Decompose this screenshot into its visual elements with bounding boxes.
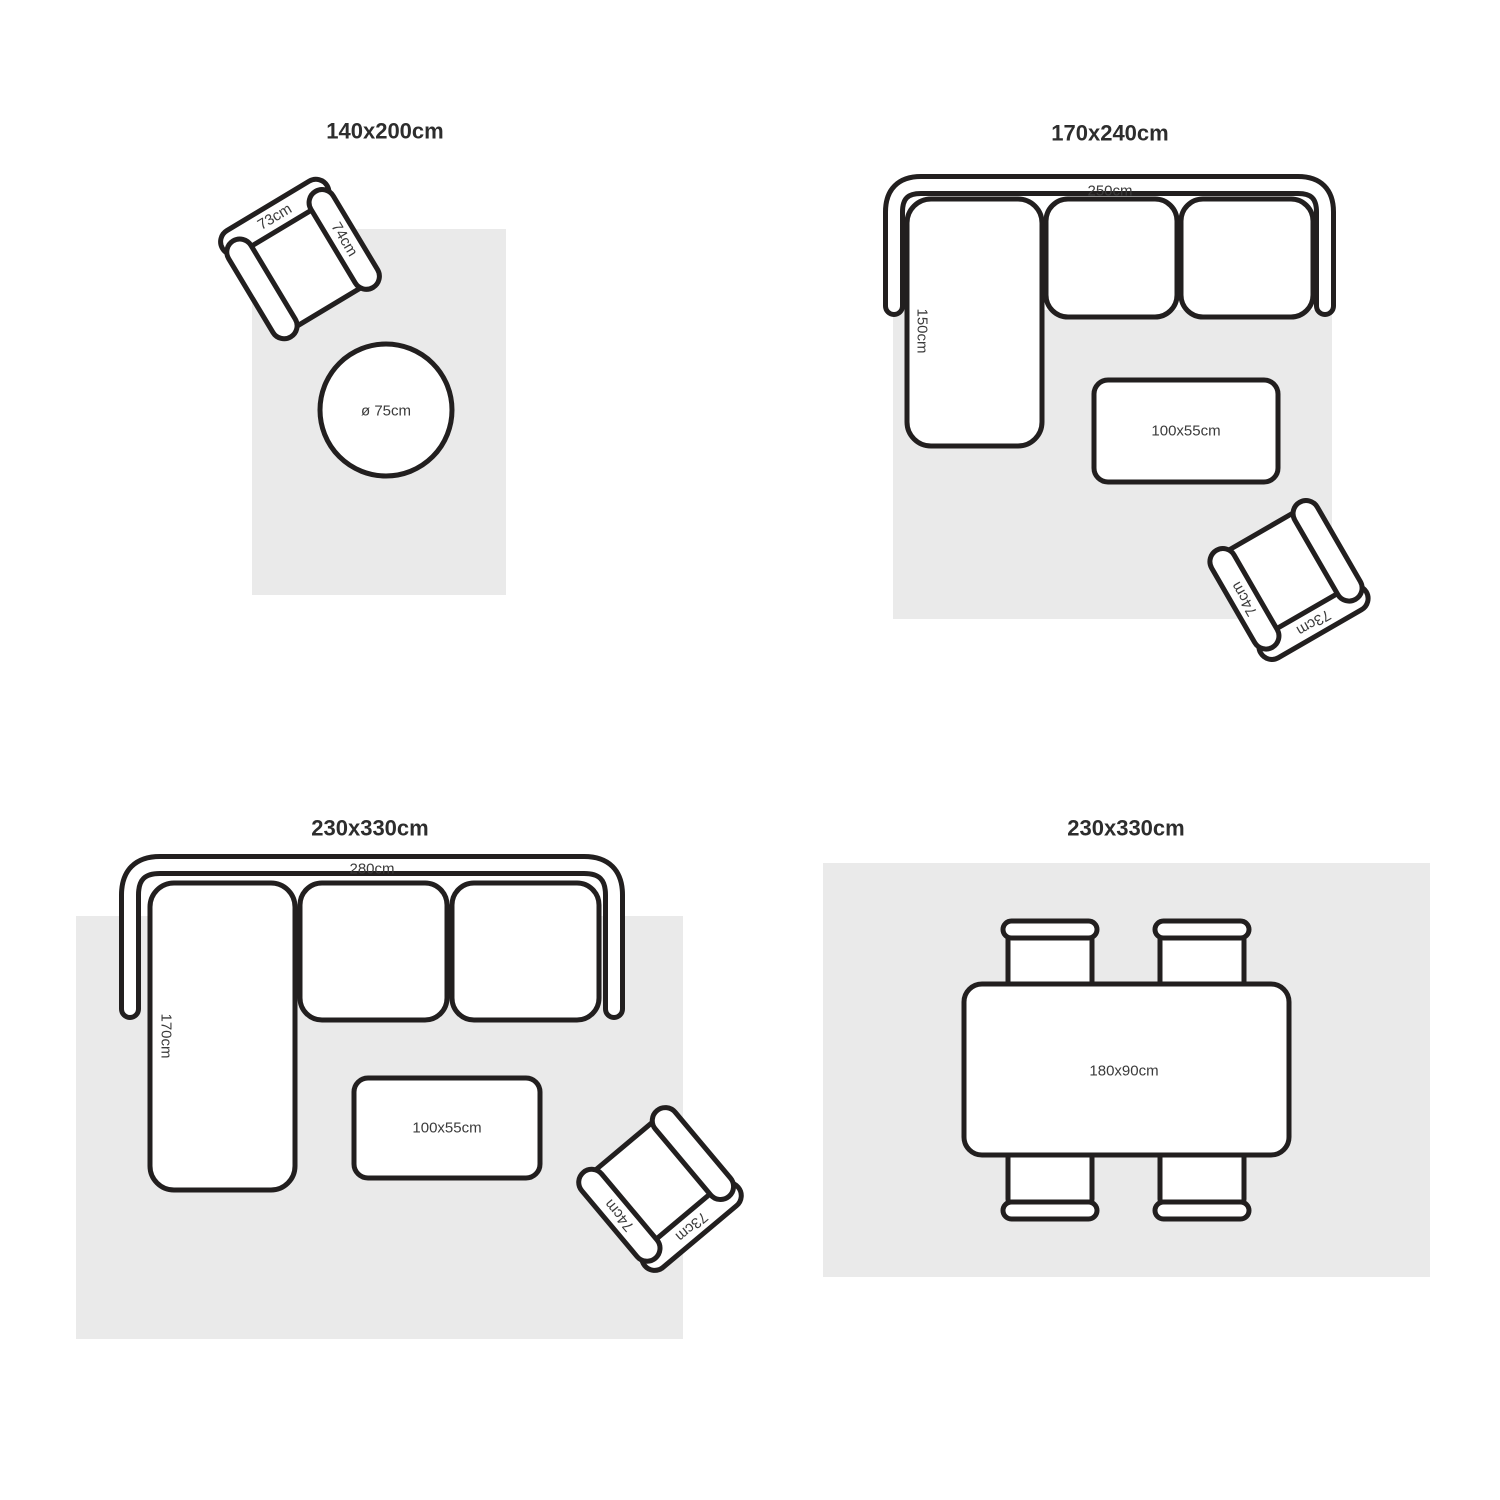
dining-chair-backrest (1003, 921, 1097, 938)
sofa-chaise-depth-label: 170cm (158, 1013, 175, 1058)
dining-chair-backrest (1155, 921, 1249, 938)
panel-title: 230x330cm (1067, 816, 1184, 841)
panel-230x330-living: 230x330cm 280cm 170cm 100x55cm 73cm 74cm (76, 816, 747, 1340)
coffee-table-size-label: 100x55cm (1151, 423, 1220, 440)
dining-chair-backrest (1003, 1202, 1097, 1219)
panel-170x240: 170x240cm 250cm 150cm 100x55cm 73cm 74cm (893, 121, 1373, 665)
sofa-seat-cushion (1046, 199, 1177, 317)
panel-140x200: 140x200cm ø 75cm 73cm 74cm (216, 119, 506, 596)
sofa-width-label: 250cm (1087, 183, 1132, 200)
sofa-seat-cushion (1181, 199, 1313, 317)
round-table-diameter-label: ø 75cm (361, 403, 411, 420)
dining-chair-backrest (1155, 1202, 1249, 1219)
panel-title: 140x200cm (326, 119, 443, 144)
sofa-width-label: 280cm (349, 861, 394, 878)
sofa-seat-cushion (300, 883, 447, 1020)
panel-title: 170x240cm (1051, 121, 1168, 146)
panel-title: 230x330cm (311, 816, 428, 841)
dining-table-size-label: 180x90cm (1089, 1063, 1158, 1080)
panel-230x330-dining: 230x330cm 180x90cm (823, 816, 1430, 1278)
sofa-chaise-depth-label: 150cm (914, 308, 931, 353)
sofa-seat-cushion (452, 883, 599, 1020)
rug-size-guide: 140x200cm ø 75cm 73cm 74cm 170x240cm 250… (0, 0, 1500, 1500)
coffee-table-size-label: 100x55cm (412, 1120, 481, 1137)
